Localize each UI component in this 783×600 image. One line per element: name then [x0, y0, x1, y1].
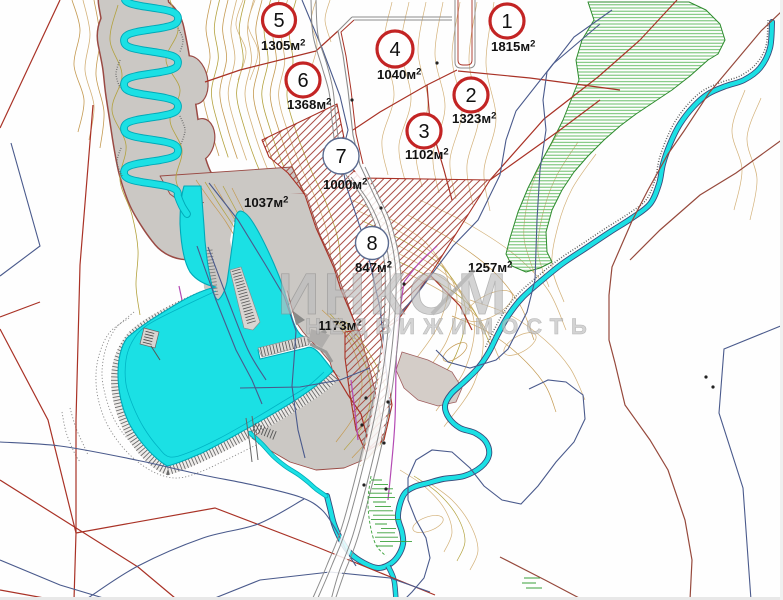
- svg-text:7: 7: [335, 146, 346, 168]
- svg-text:1368м2: 1368м2: [287, 97, 331, 113]
- svg-text:1037м2: 1037м2: [244, 195, 288, 211]
- svg-text:1: 1: [501, 11, 512, 33]
- svg-text:3: 3: [418, 121, 429, 143]
- svg-text:1102м2: 1102м2: [405, 147, 449, 163]
- svg-text:8: 8: [366, 233, 377, 255]
- svg-text:6: 6: [297, 70, 308, 92]
- svg-text:2: 2: [465, 85, 476, 107]
- svg-text:1000м2: 1000м2: [323, 177, 367, 193]
- svg-text:4: 4: [389, 39, 400, 61]
- svg-text:НЕДВИЖИМОСТЬ: НЕДВИЖИМОСТЬ: [305, 314, 595, 339]
- svg-text:5: 5: [273, 10, 284, 32]
- svg-text:1323м2: 1323м2: [452, 111, 496, 127]
- svg-text:1815м2: 1815м2: [491, 39, 535, 55]
- svg-text:1305м2: 1305м2: [261, 38, 305, 54]
- svg-text:1040м2: 1040м2: [377, 67, 421, 83]
